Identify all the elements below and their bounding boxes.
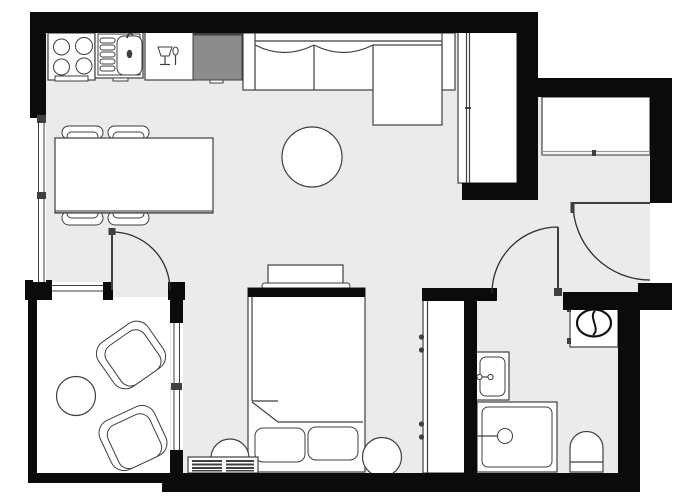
countertop xyxy=(193,33,242,83)
shower-icon xyxy=(477,402,557,472)
spoon-icon xyxy=(173,47,178,55)
dining-table xyxy=(55,138,213,213)
window-glazing xyxy=(171,323,183,450)
left-wall-upper xyxy=(30,12,46,118)
pillow xyxy=(308,427,358,460)
pillow xyxy=(255,428,305,462)
bathroom-sink-icon xyxy=(476,352,509,400)
bathroom-left-wall xyxy=(464,300,477,475)
dining-set xyxy=(55,126,213,225)
tall-closet xyxy=(458,32,517,183)
wine-glass-icon xyxy=(158,47,172,56)
bathroom-door-threshold xyxy=(497,288,563,310)
balcony-bottom-wall xyxy=(28,473,178,483)
wardrobe xyxy=(419,298,467,473)
bathroom-right-wall xyxy=(618,310,640,492)
kitchen-sink-icon xyxy=(95,31,143,81)
window-glazing xyxy=(52,282,103,298)
toilet-icon xyxy=(570,432,603,473)
stove-icon xyxy=(48,33,95,81)
step-wall xyxy=(517,12,538,200)
headboard xyxy=(248,288,365,297)
balcony-side-table xyxy=(57,377,96,416)
floor-plan xyxy=(0,0,700,500)
top-wall xyxy=(30,12,538,33)
chaise-cushion xyxy=(373,45,442,125)
wardrobe-handle xyxy=(419,421,424,426)
coffee-table xyxy=(282,127,342,187)
balcony-left-wall xyxy=(28,300,37,483)
right-wall-upper xyxy=(650,97,672,203)
wardrobe-handle xyxy=(419,334,424,339)
entry-top-wall xyxy=(538,78,672,97)
radiator xyxy=(188,457,258,473)
headboard-shelf xyxy=(268,265,343,285)
bottom-wall xyxy=(162,473,640,492)
window-glazing xyxy=(33,115,46,282)
wardrobe-handle xyxy=(419,347,424,352)
bed-group xyxy=(248,265,365,472)
entry-closet xyxy=(542,97,650,156)
floor-plan-drawing xyxy=(0,0,700,500)
kitchen xyxy=(48,31,242,83)
wardrobe-handle xyxy=(419,434,424,439)
dishwasher-icon xyxy=(145,31,195,80)
bedside-stool xyxy=(363,438,402,477)
